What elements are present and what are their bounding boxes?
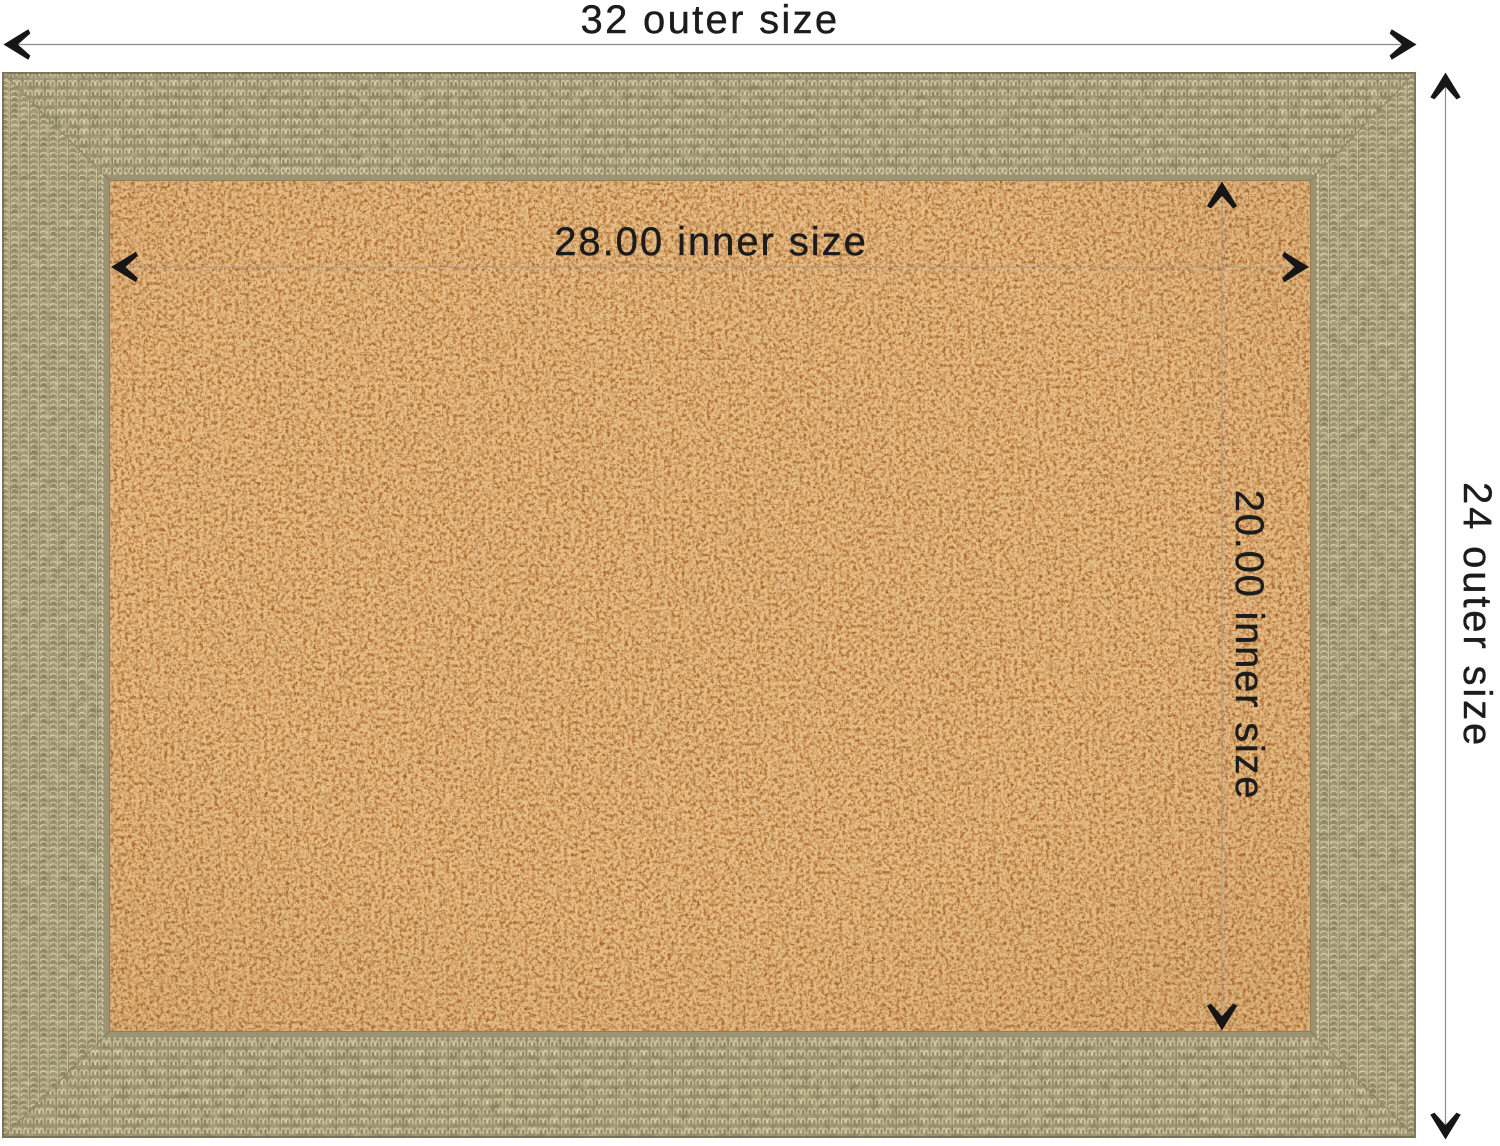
svg-text:32 outer size: 32 outer size [581,0,840,42]
svg-text:24 outer size: 24 outer size [1455,482,1499,748]
svg-text:20.00 inner size: 20.00 inner size [1227,490,1271,800]
svg-text:28.00 inner size: 28.00 inner size [554,220,868,264]
